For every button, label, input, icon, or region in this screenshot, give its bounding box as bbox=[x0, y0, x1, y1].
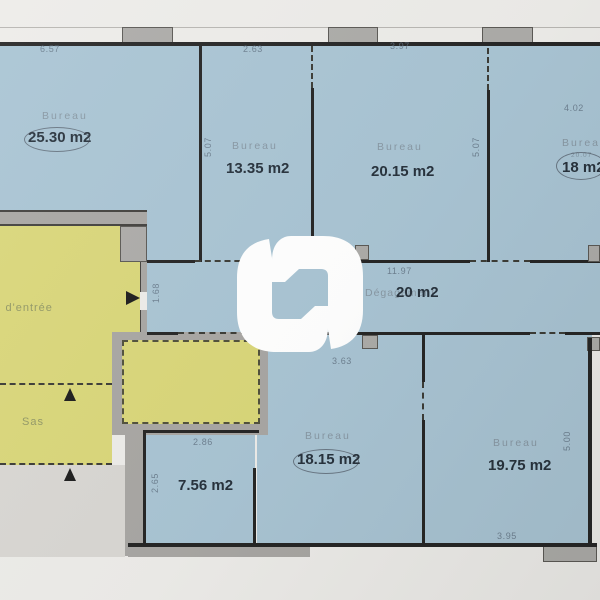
watermark-logo bbox=[237, 236, 363, 354]
wall-corridor-bottom-a bbox=[147, 332, 178, 335]
dimension-label: 11.97 bbox=[387, 266, 412, 276]
wall-right-outer bbox=[588, 338, 592, 546]
door-swing-icon bbox=[64, 468, 76, 481]
wall-756-right bbox=[253, 468, 256, 543]
dimension-label: 4.02 bbox=[564, 103, 584, 113]
pillar-top-3 bbox=[482, 27, 533, 43]
wall-756-top bbox=[143, 430, 259, 433]
exterior-area bbox=[0, 465, 125, 557]
dimension-label: 5.00 bbox=[562, 431, 572, 451]
room-label-bureau3: Bureau bbox=[377, 141, 423, 153]
door-swing-icon bbox=[64, 388, 76, 401]
pillar-top-2 bbox=[328, 27, 378, 43]
dimension-label: 2.65 bbox=[150, 473, 160, 493]
room-label-bureau4: Bureau bbox=[562, 137, 600, 149]
wall-partition-1 bbox=[199, 46, 202, 262]
threshold-sas-exterior bbox=[0, 463, 112, 465]
wall-hall-top bbox=[0, 210, 147, 226]
room-label-sas: Sas bbox=[22, 416, 44, 428]
room-label-hall: l d'entrée bbox=[0, 302, 53, 314]
wall-top-outer bbox=[0, 42, 600, 46]
room-area-bureau6: 19.75 m2 bbox=[488, 457, 551, 474]
wall-corridor-bottom-c bbox=[565, 332, 600, 335]
room-area-corridor: 20 m2 bbox=[396, 284, 439, 301]
wall-bottom-outer bbox=[128, 543, 597, 547]
wall-bottom-band-left bbox=[128, 547, 310, 557]
door-swing-icon bbox=[126, 291, 140, 305]
room-label-bureau2: Bureau bbox=[232, 140, 278, 152]
dimension-label: 2.63 bbox=[243, 44, 263, 54]
handwritten-circle bbox=[293, 449, 359, 474]
dimension-label: 5.07 bbox=[203, 137, 213, 157]
pillar-corridor-2 bbox=[588, 245, 600, 262]
wall-partition-3-dashed bbox=[487, 48, 489, 90]
room-label-bureau1: Bureau bbox=[42, 110, 88, 122]
wall-hall-right-upper bbox=[140, 262, 147, 292]
wall-756-left bbox=[143, 432, 146, 543]
wall-hall-pilaster bbox=[120, 226, 147, 262]
wall-45-solid-bottom bbox=[422, 420, 425, 543]
door-opening-corridor-4 bbox=[530, 332, 565, 334]
handwritten-circle bbox=[556, 152, 600, 180]
dimension-label: 3.97 bbox=[390, 41, 410, 51]
wall-partition-3 bbox=[487, 90, 490, 262]
pillar-top-1 bbox=[122, 27, 173, 43]
room-label-bureau5: Bureau bbox=[305, 430, 351, 442]
wall-partition-2-dashed bbox=[311, 46, 313, 88]
handwritten-circle bbox=[24, 127, 90, 152]
wall-45-solid-top bbox=[422, 335, 425, 382]
floor-plan: 6.57 2.63 3.97 4.02 5.07 5.07 11.97 1.68… bbox=[0, 0, 600, 600]
dimension-label: 2.86 bbox=[193, 437, 213, 447]
door-opening-45 bbox=[422, 382, 424, 420]
room-label-bureau6: Bureau bbox=[493, 437, 539, 449]
threshold-hall-sas bbox=[0, 383, 112, 385]
room-area-bureau3: 20.15 m2 bbox=[371, 163, 434, 180]
door-opening-corridor-2 bbox=[470, 260, 530, 262]
room-area-756: 7.56 m2 bbox=[178, 477, 233, 494]
dimension-label: 1.68 bbox=[151, 283, 161, 303]
room-area-bureau2: 13.35 m2 bbox=[226, 160, 289, 177]
dimension-label: 6.57 bbox=[40, 44, 60, 54]
sas-fill bbox=[0, 385, 112, 465]
dimension-label: 5.07 bbox=[471, 137, 481, 157]
wall-hall-right-lower bbox=[140, 310, 147, 334]
wall-corridor-top-a bbox=[147, 260, 195, 263]
pillar-corridor-3 bbox=[362, 335, 378, 349]
dimension-label: 3.95 bbox=[497, 531, 517, 541]
dimension-label: 3.63 bbox=[332, 356, 352, 366]
wall-bottom-corner-right bbox=[543, 546, 597, 562]
